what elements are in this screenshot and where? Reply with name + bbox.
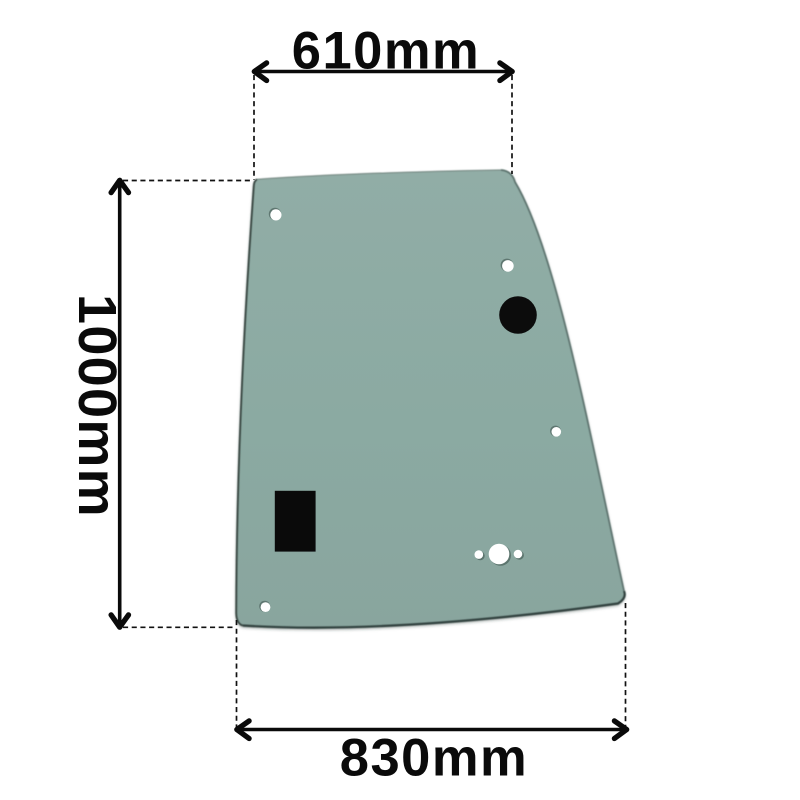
svg-text:610mm: 610mm [292, 22, 480, 81]
svg-text:830mm: 830mm [340, 728, 528, 787]
svg-text:1000mm: 1000mm [67, 294, 127, 518]
